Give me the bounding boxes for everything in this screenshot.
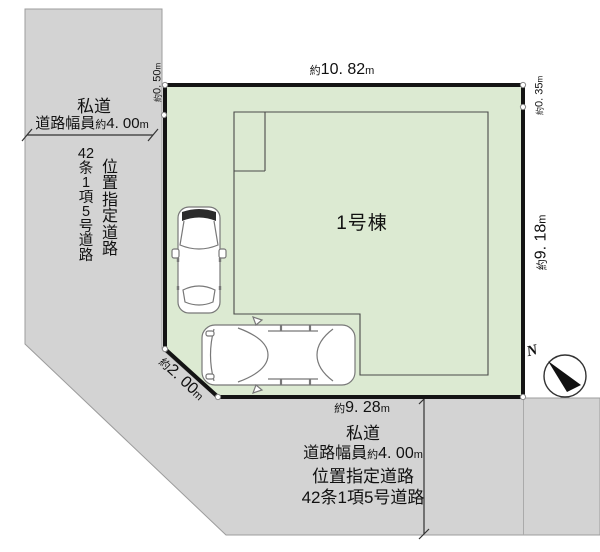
measurement-point	[215, 394, 220, 399]
dimension-top: 約10. 82m	[262, 62, 422, 79]
vertical-char: 置	[102, 176, 118, 192]
bottom-road-designation: 位置指定道路	[263, 468, 463, 486]
dimension-bottom: 約9. 28m	[282, 400, 442, 417]
bottom-road-name: 私道	[263, 425, 463, 443]
measurement-point	[520, 394, 525, 399]
bottom-road-width: 道路幅員約4. 00m	[263, 446, 463, 463]
vertical-char: 1	[82, 176, 90, 191]
vertical-char: 5	[82, 205, 90, 220]
left-road-article-vertical-text: 42条1項5号道路	[74, 147, 98, 263]
car-top-view-vertical	[172, 207, 226, 313]
bottom-road-article: 42条1項5号道路	[263, 489, 463, 507]
vertical-char: 項	[79, 191, 94, 206]
compass-icon	[544, 355, 586, 397]
vertical-char: 条	[79, 162, 94, 177]
dimension-right-offset: 約0. 35m	[531, 45, 548, 145]
left-road-width: 道路幅員約4. 00m	[12, 116, 172, 133]
site-plan: 約10. 82m 約9. 18m 約9. 28m 約2. 00m 約0. 50m…	[0, 0, 600, 552]
vertical-char: 位	[102, 160, 118, 176]
vertical-char: 定	[102, 209, 118, 225]
measurement-point	[520, 82, 525, 87]
left-road-designation-vertical-text: 位置指定道路	[98, 160, 122, 258]
left-road-name: 私道	[44, 98, 144, 116]
vertical-char: 道	[102, 226, 118, 242]
vertical-char: 指	[102, 193, 118, 209]
car-top-view-horizontal	[202, 317, 355, 393]
vertical-char: 42	[78, 147, 94, 162]
vertical-char: 路	[79, 249, 94, 264]
measurement-point	[520, 104, 525, 109]
dimension-right: 約9. 18m	[534, 187, 551, 297]
building-label: 1号棟	[302, 214, 422, 234]
vertical-char: 路	[102, 242, 118, 258]
vertical-char: 道	[79, 234, 94, 249]
vertical-char: 号	[79, 220, 94, 235]
